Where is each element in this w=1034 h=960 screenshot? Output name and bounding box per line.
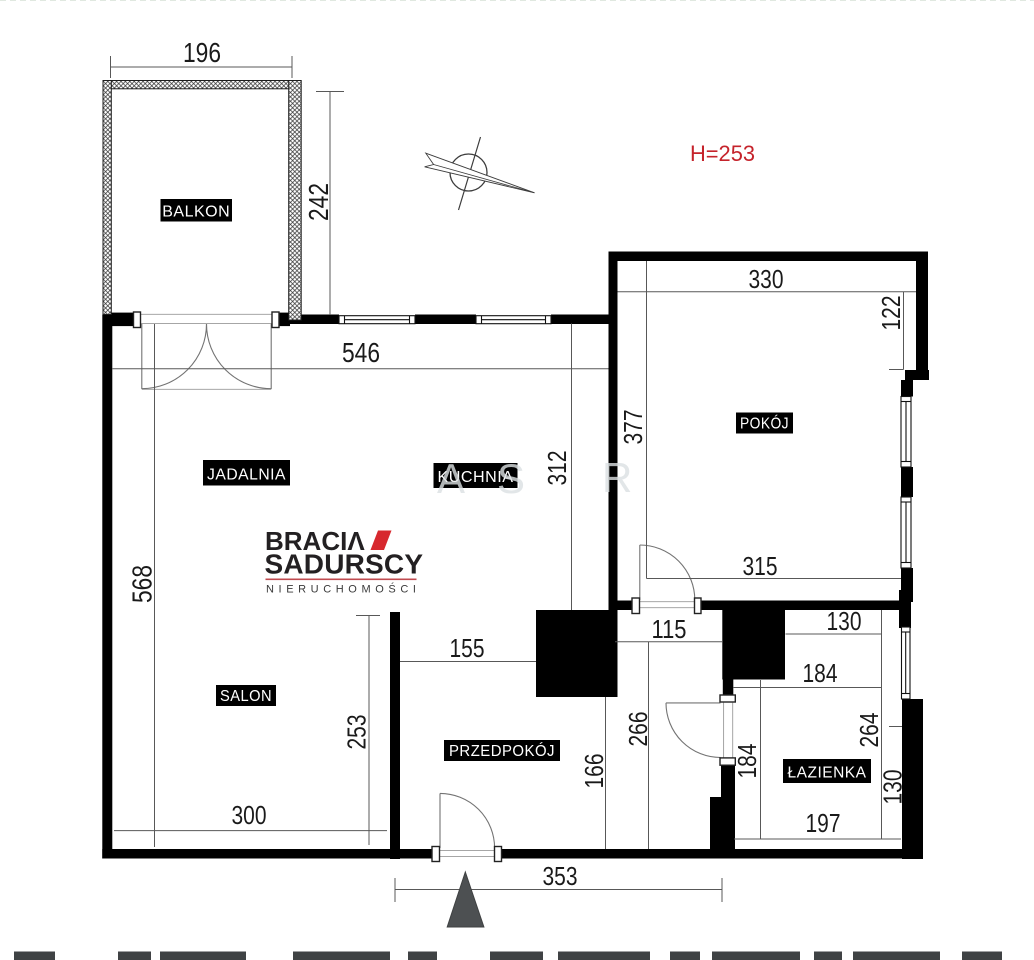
svg-text:POKÓJ: POKÓJ	[740, 414, 789, 433]
svg-text:S: S	[497, 455, 525, 502]
svg-text:JADALNIA: JADALNIA	[207, 467, 286, 484]
svg-text:312: 312	[542, 451, 572, 486]
svg-text:122: 122	[876, 296, 906, 331]
svg-text:115: 115	[652, 614, 687, 644]
svg-text:R: R	[602, 454, 632, 501]
svg-text:130: 130	[827, 606, 862, 636]
svg-text:546: 546	[342, 337, 380, 368]
svg-text:300: 300	[232, 800, 267, 830]
svg-text:130: 130	[878, 770, 908, 805]
svg-text:266: 266	[623, 712, 653, 747]
svg-text:353: 353	[543, 861, 578, 891]
svg-text:315: 315	[743, 551, 778, 581]
svg-text:184: 184	[803, 658, 838, 688]
svg-text:568: 568	[127, 565, 158, 603]
svg-text:PRZEDPOKÓJ: PRZEDPOKÓJ	[449, 741, 555, 760]
svg-text:SALON: SALON	[220, 688, 272, 705]
svg-text:SADURSCY: SADURSCY	[265, 549, 424, 580]
svg-text:BALKON: BALKON	[162, 204, 230, 221]
svg-text:166: 166	[579, 754, 609, 789]
svg-text:253: 253	[342, 715, 372, 750]
svg-text:242: 242	[303, 183, 334, 221]
svg-text:196: 196	[183, 37, 221, 68]
svg-text:ŁAZIENKA: ŁAZIENKA	[788, 765, 867, 782]
svg-text:197: 197	[806, 808, 841, 838]
svg-text:330: 330	[749, 264, 784, 294]
svg-text:NIERUCHOMOŚCI: NIERUCHOMOŚCI	[266, 583, 421, 596]
svg-text:377: 377	[618, 410, 648, 445]
svg-text:H=253: H=253	[690, 141, 755, 166]
svg-text:264: 264	[854, 713, 884, 748]
svg-text:184: 184	[732, 744, 762, 779]
svg-text:155: 155	[450, 633, 485, 663]
svg-text:A: A	[437, 455, 465, 502]
